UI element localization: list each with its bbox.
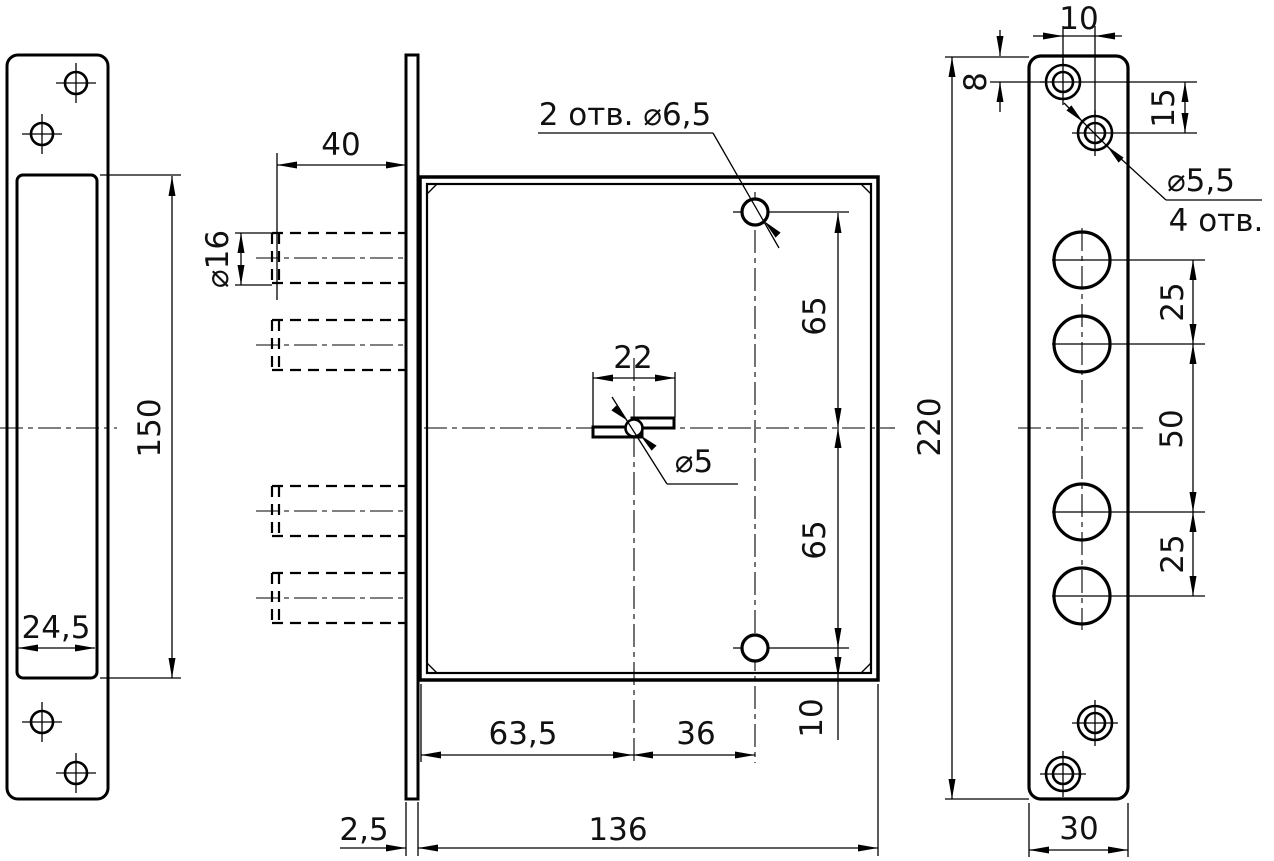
dim-220: 220 <box>912 57 1029 799</box>
dim-16-label: ⌀16 <box>200 230 236 288</box>
dim-150-label: 150 <box>132 398 168 457</box>
front-plate-edge <box>406 55 418 799</box>
label-4-holes: 4 отв. <box>1169 203 1264 239</box>
dim-36-label: 36 <box>676 716 715 752</box>
side-plate-view: 10 8 15 ⌀5,5 4 отв. <box>912 1 1263 857</box>
dim-24-5: 24,5 <box>18 610 95 652</box>
technical-drawing-canvas: 24,5 150 <box>0 0 1274 861</box>
dim-5-5-label: ⌀5,5 <box>1167 163 1235 199</box>
lock-bolts-hidden <box>256 233 412 623</box>
dim-65-top-label: 65 <box>797 296 833 335</box>
faceplate-slot <box>17 175 97 678</box>
dim-50-label: 50 <box>1154 409 1190 448</box>
lock-technical-drawing: 24,5 150 <box>0 0 1274 861</box>
dim-30-label: 30 <box>1059 811 1098 847</box>
dim-10-body-label: 10 <box>794 698 830 737</box>
dim-25-top-label: 25 <box>1155 282 1191 321</box>
dim-40: 40 <box>277 127 406 300</box>
dim-63-5-label: 63,5 <box>488 716 557 752</box>
dim-30: 30 <box>1029 803 1128 857</box>
dim-65-bottom-label: 65 <box>797 520 833 559</box>
dim-10-plate-label: 10 <box>1059 1 1098 37</box>
dim-15-label: 15 <box>1146 88 1182 127</box>
dim-136-label: 136 <box>588 812 647 848</box>
dim-22-label: 22 <box>613 340 652 376</box>
dim-16: ⌀16 <box>200 230 272 288</box>
dim-220-label: 220 <box>912 397 948 456</box>
dim-150: 150 <box>100 175 181 678</box>
faceplate-front-view: 24,5 150 <box>0 55 181 799</box>
dim-24-5-label: 24,5 <box>21 610 90 646</box>
dim-5-label: ⌀5 <box>675 444 713 480</box>
dim-2-5-label: 2,5 <box>339 812 388 848</box>
lock-body-view: 2 отв. ⌀6,5 22 ⌀5 65 <box>200 55 895 856</box>
dim-63-5-36: 63,5 36 <box>421 684 755 762</box>
dim-8-label: 8 <box>958 72 994 92</box>
dim-40-label: 40 <box>321 127 360 163</box>
dim-25-bottom-label: 25 <box>1155 534 1191 573</box>
label-2-holes: 2 отв. ⌀6,5 <box>539 97 712 133</box>
